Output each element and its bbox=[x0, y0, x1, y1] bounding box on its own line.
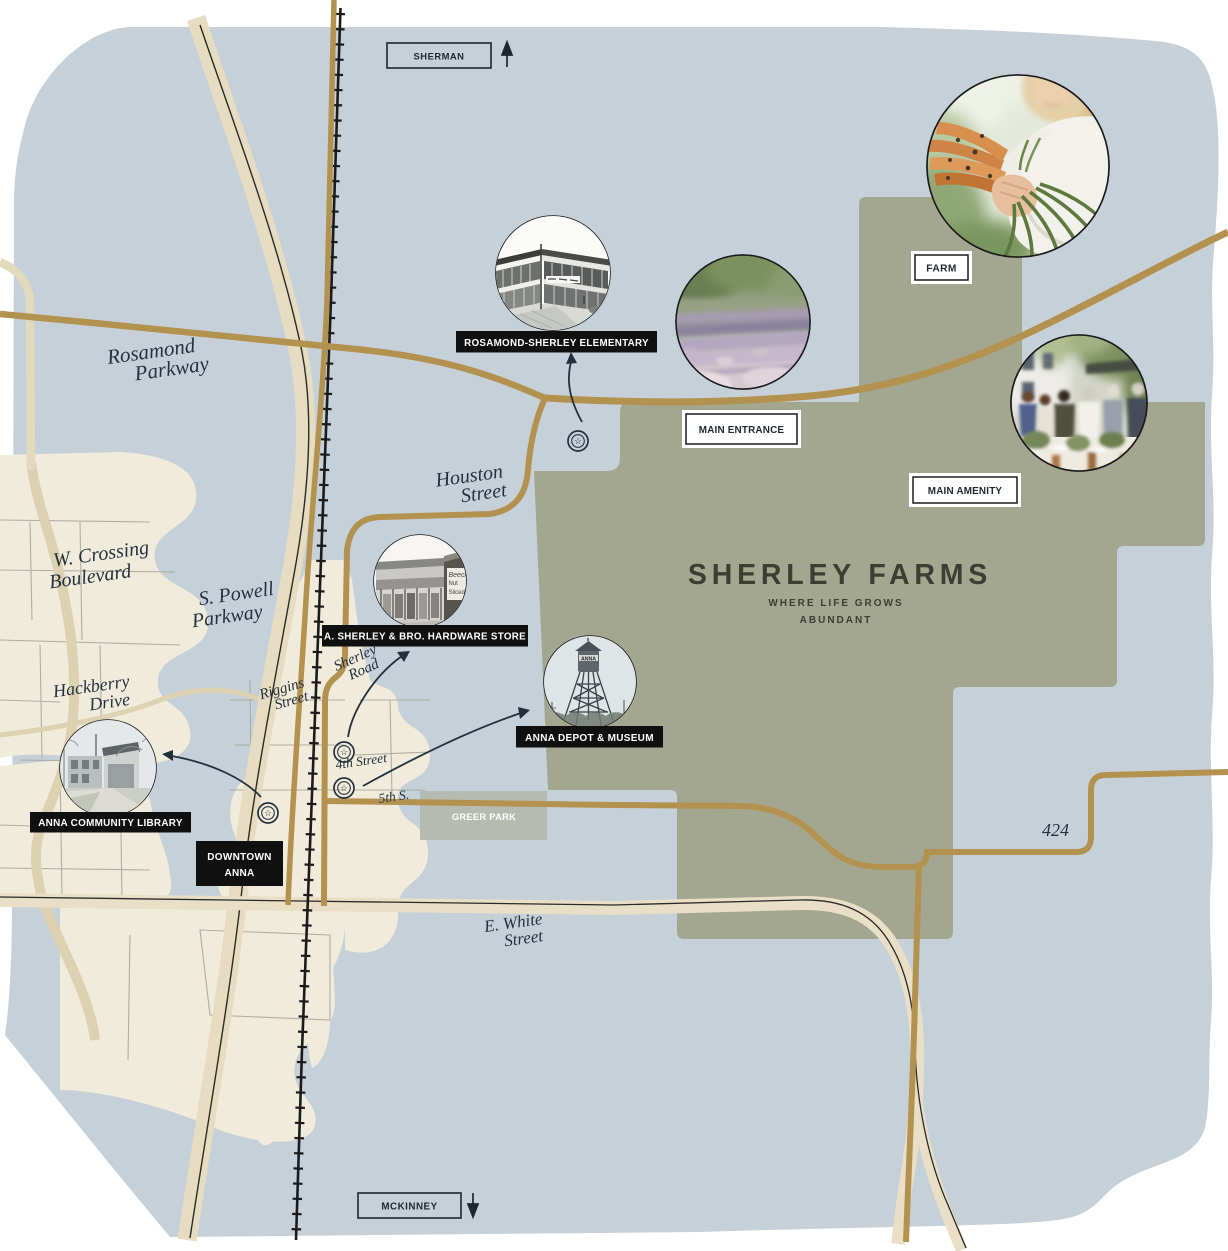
svg-text:ANNA COMMUNITY LIBRARY: ANNA COMMUNITY LIBRARY bbox=[38, 818, 183, 829]
svg-text:Nut: Nut bbox=[449, 581, 459, 587]
svg-text:☆: ☆ bbox=[264, 808, 272, 818]
svg-text:MCKINNEY: MCKINNEY bbox=[381, 1202, 437, 1213]
svg-text:☆: ☆ bbox=[574, 436, 582, 446]
svg-text:ANNA: ANNA bbox=[581, 657, 596, 663]
svg-text:ROSAMOND-SHERLEY ELEMENTARY: ROSAMOND-SHERLEY ELEMENTARY bbox=[464, 338, 649, 349]
svg-text:GREER PARK: GREER PARK bbox=[452, 812, 516, 822]
svg-text:Sliced: Sliced bbox=[449, 590, 465, 596]
svg-text:MAIN ENTRANCE: MAIN ENTRANCE bbox=[699, 425, 785, 436]
svg-text:424: 424 bbox=[1042, 820, 1069, 840]
svg-text:FARM: FARM bbox=[926, 264, 956, 275]
svg-text:☆: ☆ bbox=[340, 783, 348, 793]
svg-text:ANNA DEPOT & MUSEUM: ANNA DEPOT & MUSEUM bbox=[525, 733, 654, 744]
svg-text:MAIN AMENITY: MAIN AMENITY bbox=[928, 486, 1003, 497]
svg-text:ANNA: ANNA bbox=[224, 868, 254, 879]
svg-text:A. SHERLEY & BRO. HARDWARE STO: A. SHERLEY & BRO. HARDWARE STORE bbox=[324, 632, 526, 643]
svg-text:WHERE LIFE GROWS: WHERE LIFE GROWS bbox=[768, 598, 903, 609]
svg-text:DOWNTOWN: DOWNTOWN bbox=[207, 852, 271, 863]
svg-text:SHERMAN: SHERMAN bbox=[414, 51, 465, 62]
svg-text:SHERLEY FARMS: SHERLEY FARMS bbox=[688, 559, 992, 591]
svg-text:ABUNDANT: ABUNDANT bbox=[800, 615, 873, 626]
